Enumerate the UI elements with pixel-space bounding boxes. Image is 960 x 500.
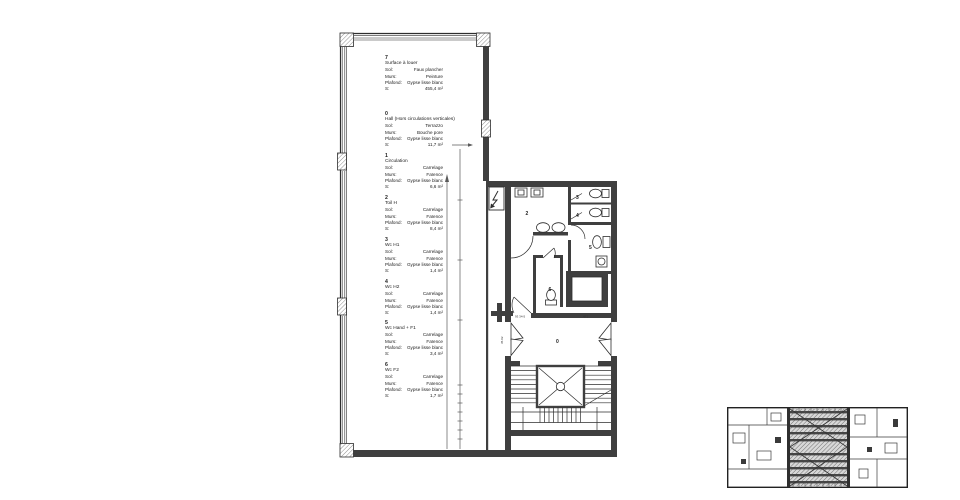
- legend-label: S:: [385, 268, 389, 274]
- legend-block-4: 4 Wc H2 Sol:Carrelage Murs:Faïence Plafo…: [385, 279, 443, 316]
- door-tag-left: 93 34-5: [515, 315, 526, 319]
- legend-label: S:: [385, 310, 389, 316]
- room-label-toil-h: 2: [526, 211, 529, 217]
- legend-label: S:: [385, 184, 389, 190]
- room-label-wc-h1: 3: [576, 195, 579, 201]
- floor-plan-sheet: 2 3 4 5 6 0 93 34-5 4F1 35.02 7 Surface …: [0, 0, 960, 500]
- door-tag-side: 35.02: [500, 336, 504, 344]
- room-label-wc-hand-f1: 5: [589, 245, 592, 251]
- legend-block-5: 5 Wc Hand + F1 Sol:Carrelage Murs:Faïenc…: [385, 320, 443, 357]
- legend-value: 8,4 m²: [430, 226, 443, 232]
- legend-block-1: 1 Circulation Sol:Carrelage Murs:Faïence…: [385, 153, 443, 190]
- electrical-riser-icon: [489, 187, 504, 210]
- legend-value: 1,4 m²: [430, 310, 443, 316]
- room-label-hall: 0: [556, 339, 559, 345]
- legend-value: 1,7 m²: [430, 393, 443, 399]
- room-label-wc-h2: 4: [576, 213, 579, 219]
- legend-block-3: 3 Wc H1 Sol:Carrelage Murs:Faïence Plafo…: [385, 237, 443, 274]
- main-floor-plan: 2 3 4 5 6 0 93 34-5 4F1 35.02: [333, 23, 625, 465]
- legend-block-6: 6 Wc F2 Sol:Carrelage Murs:Faïence Plafo…: [385, 362, 443, 399]
- key-plan-overview: [727, 407, 908, 488]
- legend-label: S:: [385, 86, 389, 92]
- staircase: [511, 366, 611, 430]
- legend-label: S:: [385, 393, 389, 399]
- legend-value: 455,4 m²: [425, 86, 443, 92]
- door-tag-right: 4F1: [583, 315, 589, 319]
- legend-value: 6,6 m²: [430, 184, 443, 190]
- legend-block-2: 2 Toil H Sol:Carrelage Murs:Faïence Plaf…: [385, 195, 443, 232]
- room-labels: 2 3 4 5 6 0 93 34-5 4F1 35.02: [500, 195, 592, 345]
- legend-block-7: 7 Surface à louer Sol:Faux plancher Murs…: [385, 55, 443, 92]
- legend-label: S:: [385, 351, 389, 357]
- legend-label: S:: [385, 226, 389, 232]
- legend-value: 1,4 m²: [430, 268, 443, 274]
- legend-block-0: 0 Hall (Hors circulations verticales) So…: [385, 111, 443, 148]
- leader-lines: [445, 143, 473, 449]
- room-label-wc-f2: 6: [549, 287, 552, 293]
- legend-value: 3,4 m²: [430, 351, 443, 357]
- legend-label: S:: [385, 142, 389, 148]
- legend-value: 11,7 m²: [428, 142, 443, 148]
